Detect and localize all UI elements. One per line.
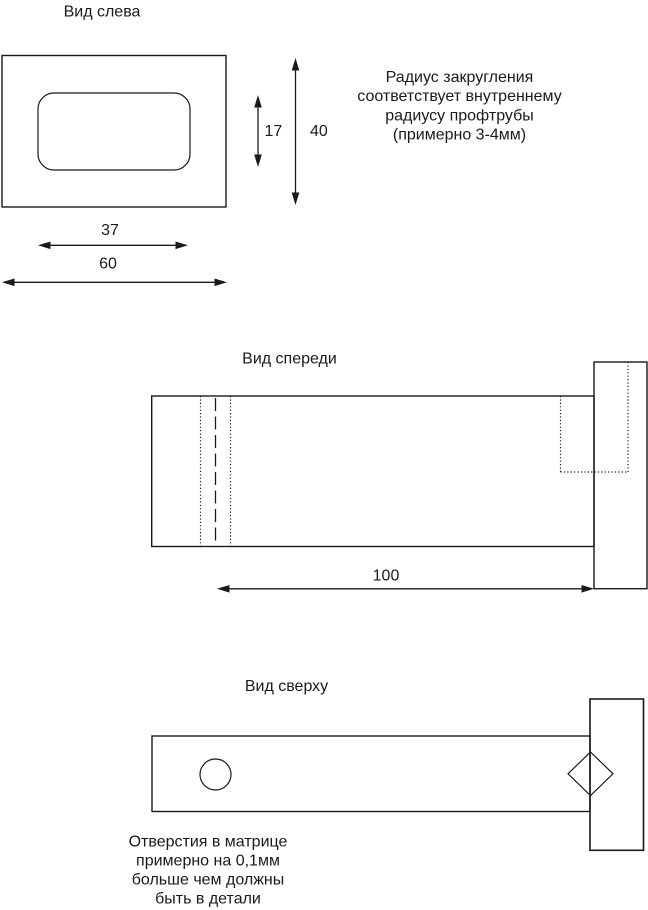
- svg-text:Вид спереди: Вид спереди: [242, 351, 337, 368]
- svg-text:соответствует внутреннему: соответствует внутреннему: [357, 88, 561, 105]
- svg-text:40: 40: [310, 123, 328, 140]
- svg-text:радиусу профтрубы: радиусу профтрубы: [385, 107, 534, 124]
- svg-text:примерно на 0,1мм: примерно на 0,1мм: [136, 853, 280, 870]
- svg-text:(примерно 3-4мм): (примерно 3-4мм): [393, 127, 526, 144]
- svg-text:Вид слева: Вид слева: [64, 4, 141, 21]
- svg-text:Радиус закругления: Радиус закругления: [386, 69, 534, 86]
- svg-text:100: 100: [373, 568, 400, 585]
- svg-text:60: 60: [99, 255, 117, 272]
- svg-text:Вид сверху: Вид сверху: [245, 678, 328, 695]
- svg-text:Отверстия в матрице: Отверстия в матрице: [129, 834, 288, 851]
- svg-text:быть в детали: быть в детали: [155, 891, 261, 908]
- svg-text:17: 17: [265, 123, 283, 140]
- svg-text:больше чем должны: больше чем должны: [132, 872, 285, 889]
- svg-text:37: 37: [101, 222, 119, 239]
